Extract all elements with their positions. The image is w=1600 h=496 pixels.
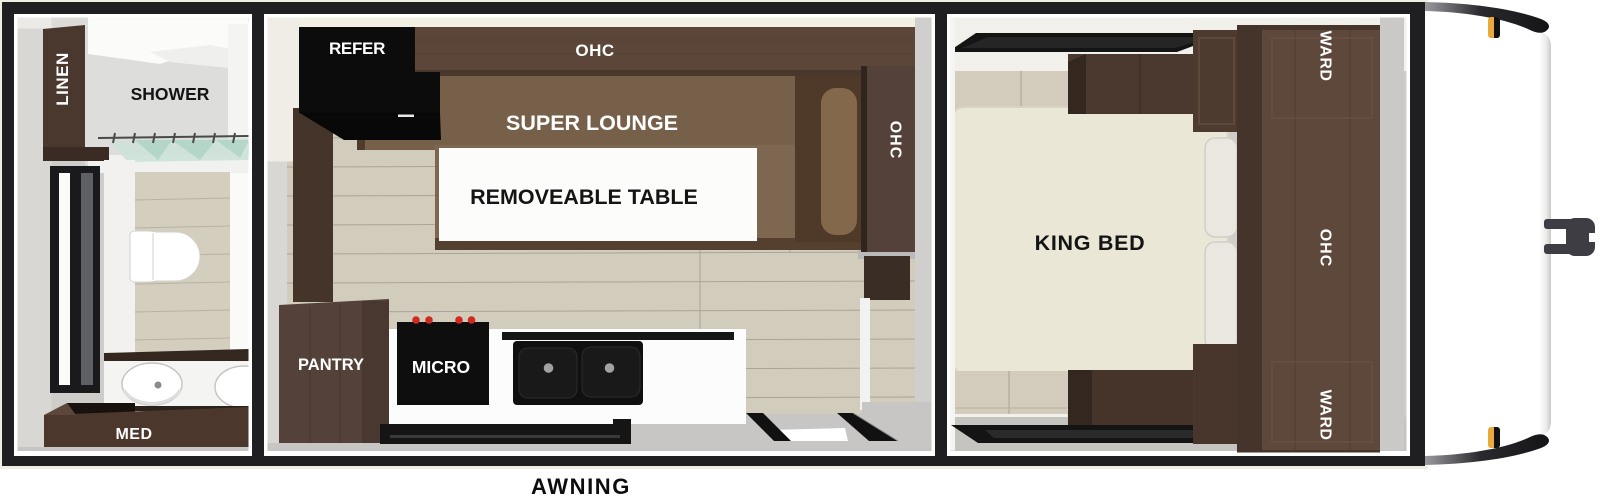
svg-text:WARD: WARD xyxy=(1317,31,1334,82)
svg-text:OHC: OHC xyxy=(1317,229,1334,268)
svg-text:MICRO: MICRO xyxy=(412,357,470,377)
svg-text:OHC: OHC xyxy=(575,41,614,60)
svg-text:SUPER LOUNGE: SUPER LOUNGE xyxy=(506,111,678,135)
svg-text:MED: MED xyxy=(115,426,152,443)
svg-text:AWNING: AWNING xyxy=(531,474,631,496)
svg-text:REFER: REFER xyxy=(329,39,385,58)
svg-text:KING BED: KING BED xyxy=(1035,231,1146,255)
svg-text:LINEN: LINEN xyxy=(53,52,72,106)
svg-text:SHOWER: SHOWER xyxy=(131,84,210,104)
svg-text:WARD: WARD xyxy=(1317,390,1334,441)
svg-text:PANTRY: PANTRY xyxy=(298,356,364,374)
svg-text:REMOVEABLE TABLE: REMOVEABLE TABLE xyxy=(470,185,698,209)
svg-text:OHC: OHC xyxy=(887,121,904,160)
